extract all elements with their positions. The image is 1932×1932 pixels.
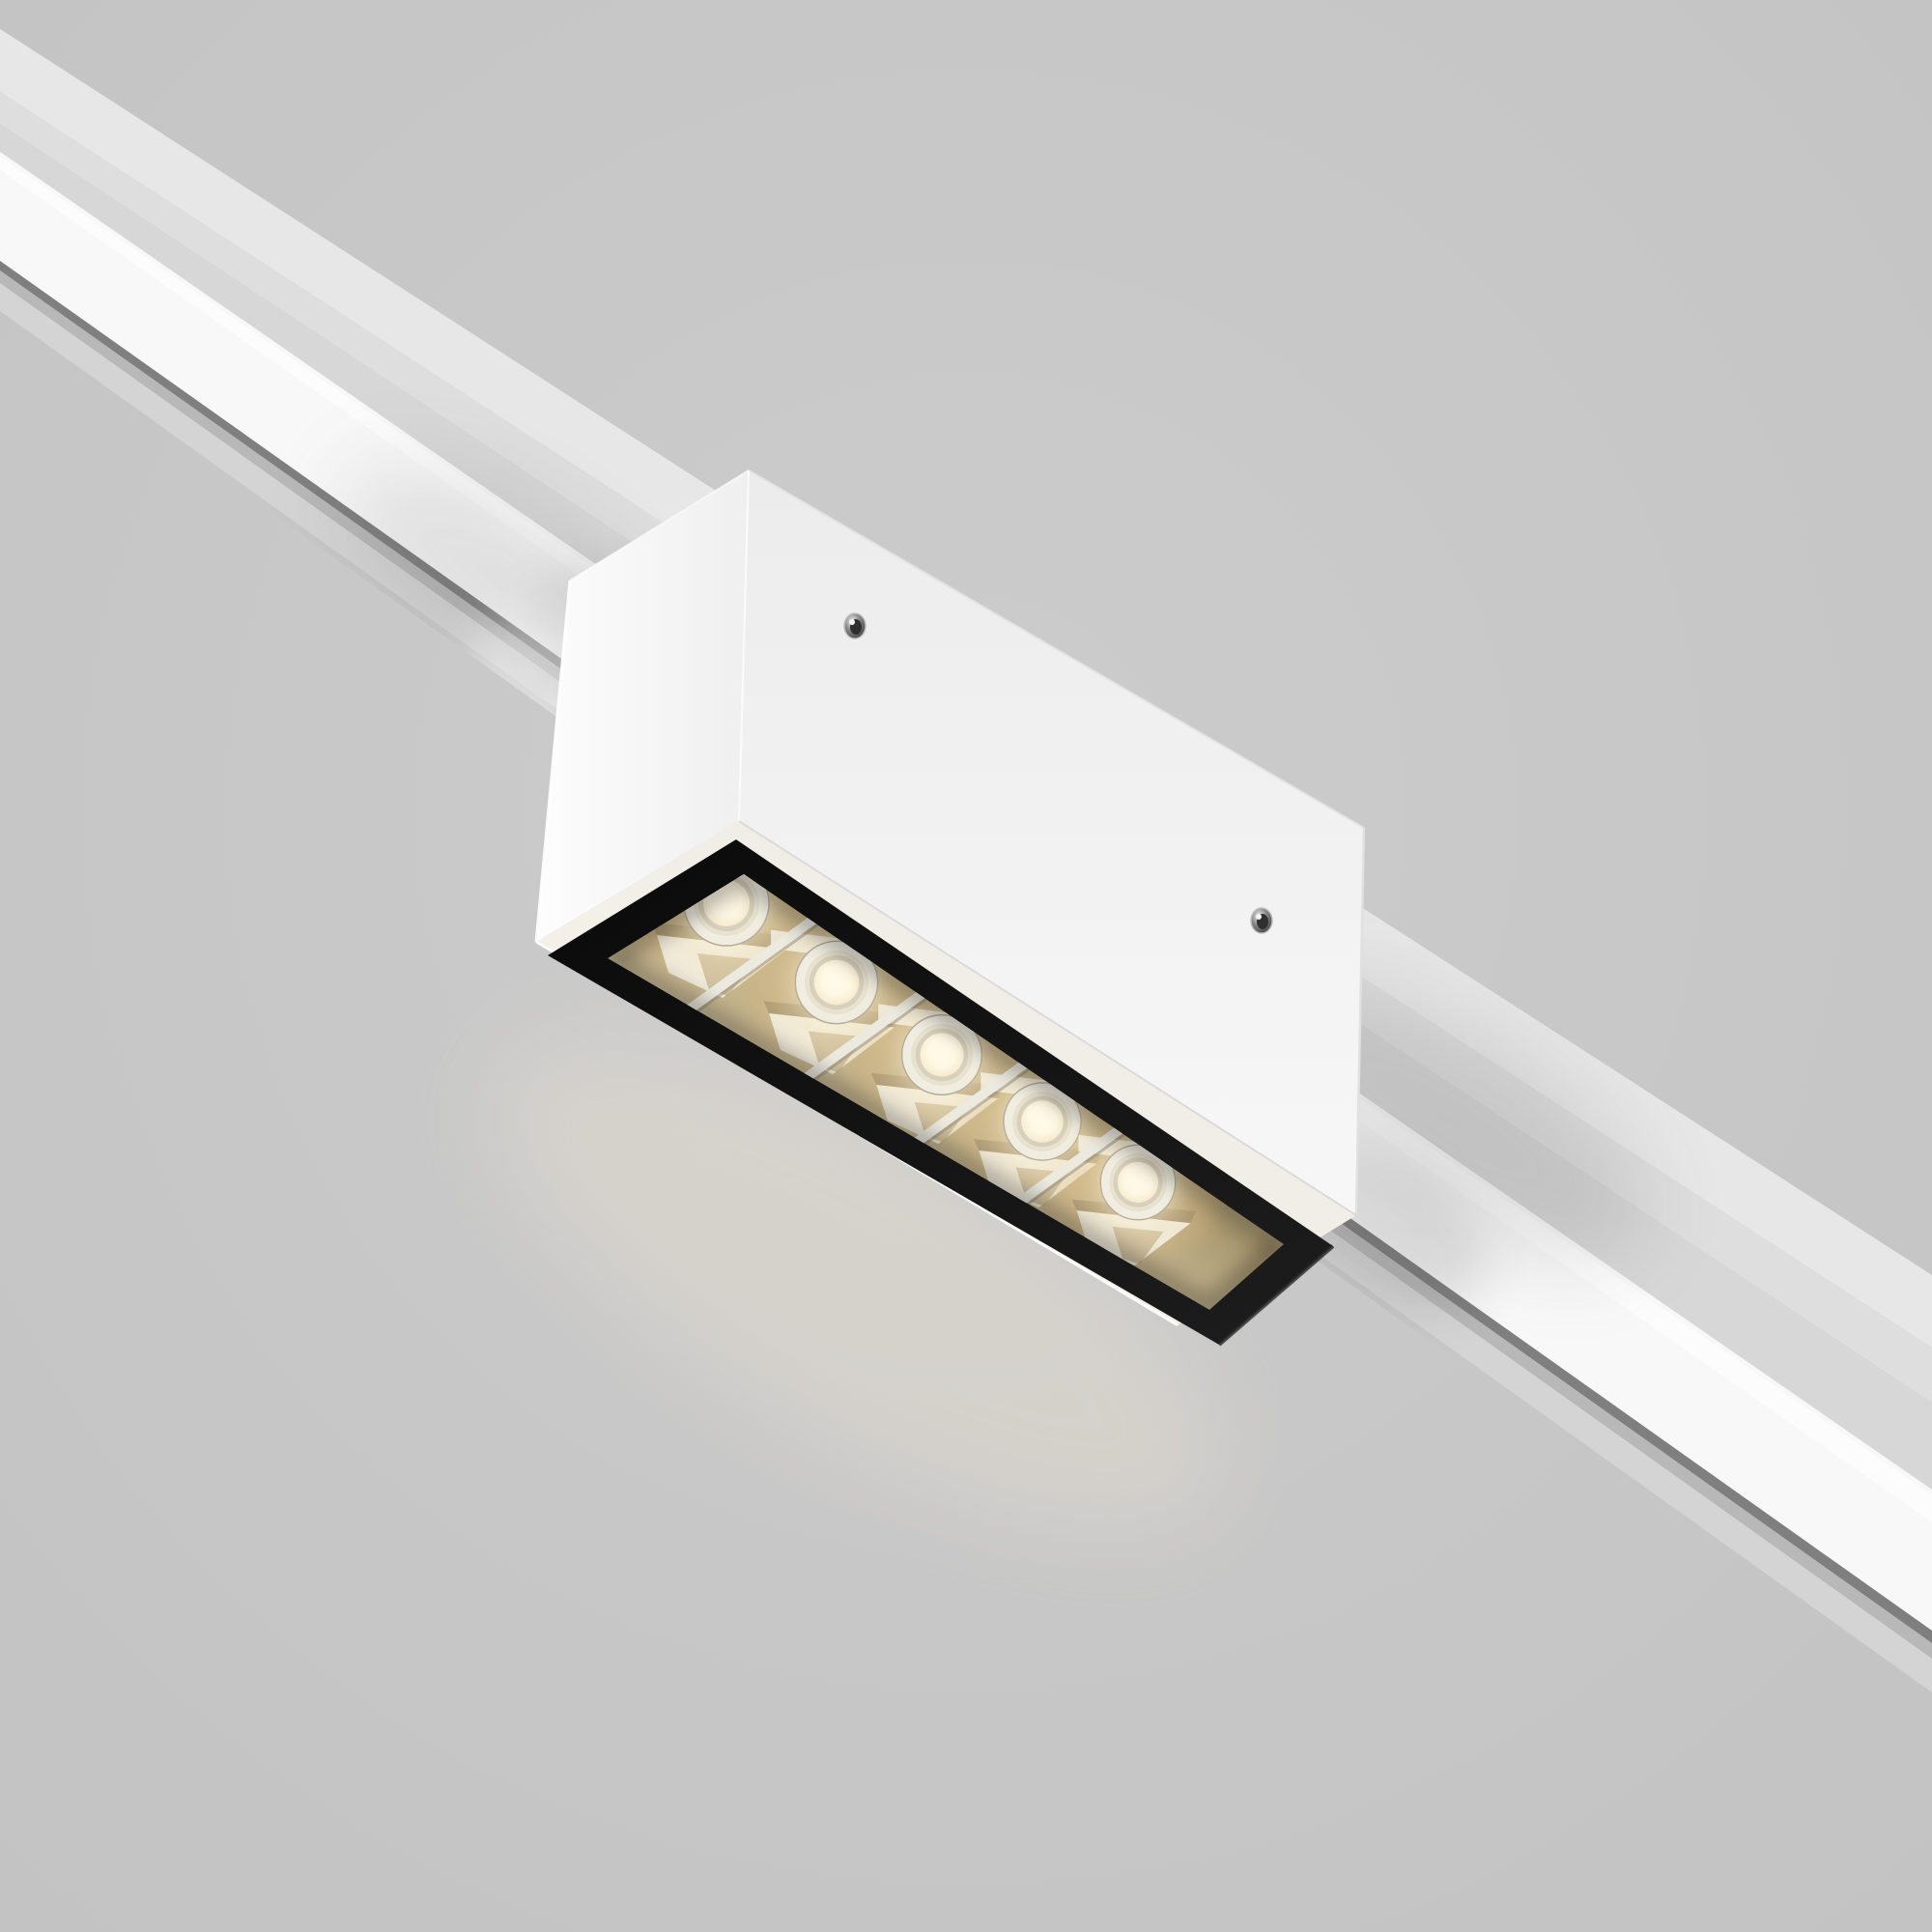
- product-photo: [0, 0, 1932, 1932]
- track-light-render: [0, 0, 1932, 1932]
- screw-1: [844, 613, 866, 639]
- screw-2: [1251, 908, 1272, 933]
